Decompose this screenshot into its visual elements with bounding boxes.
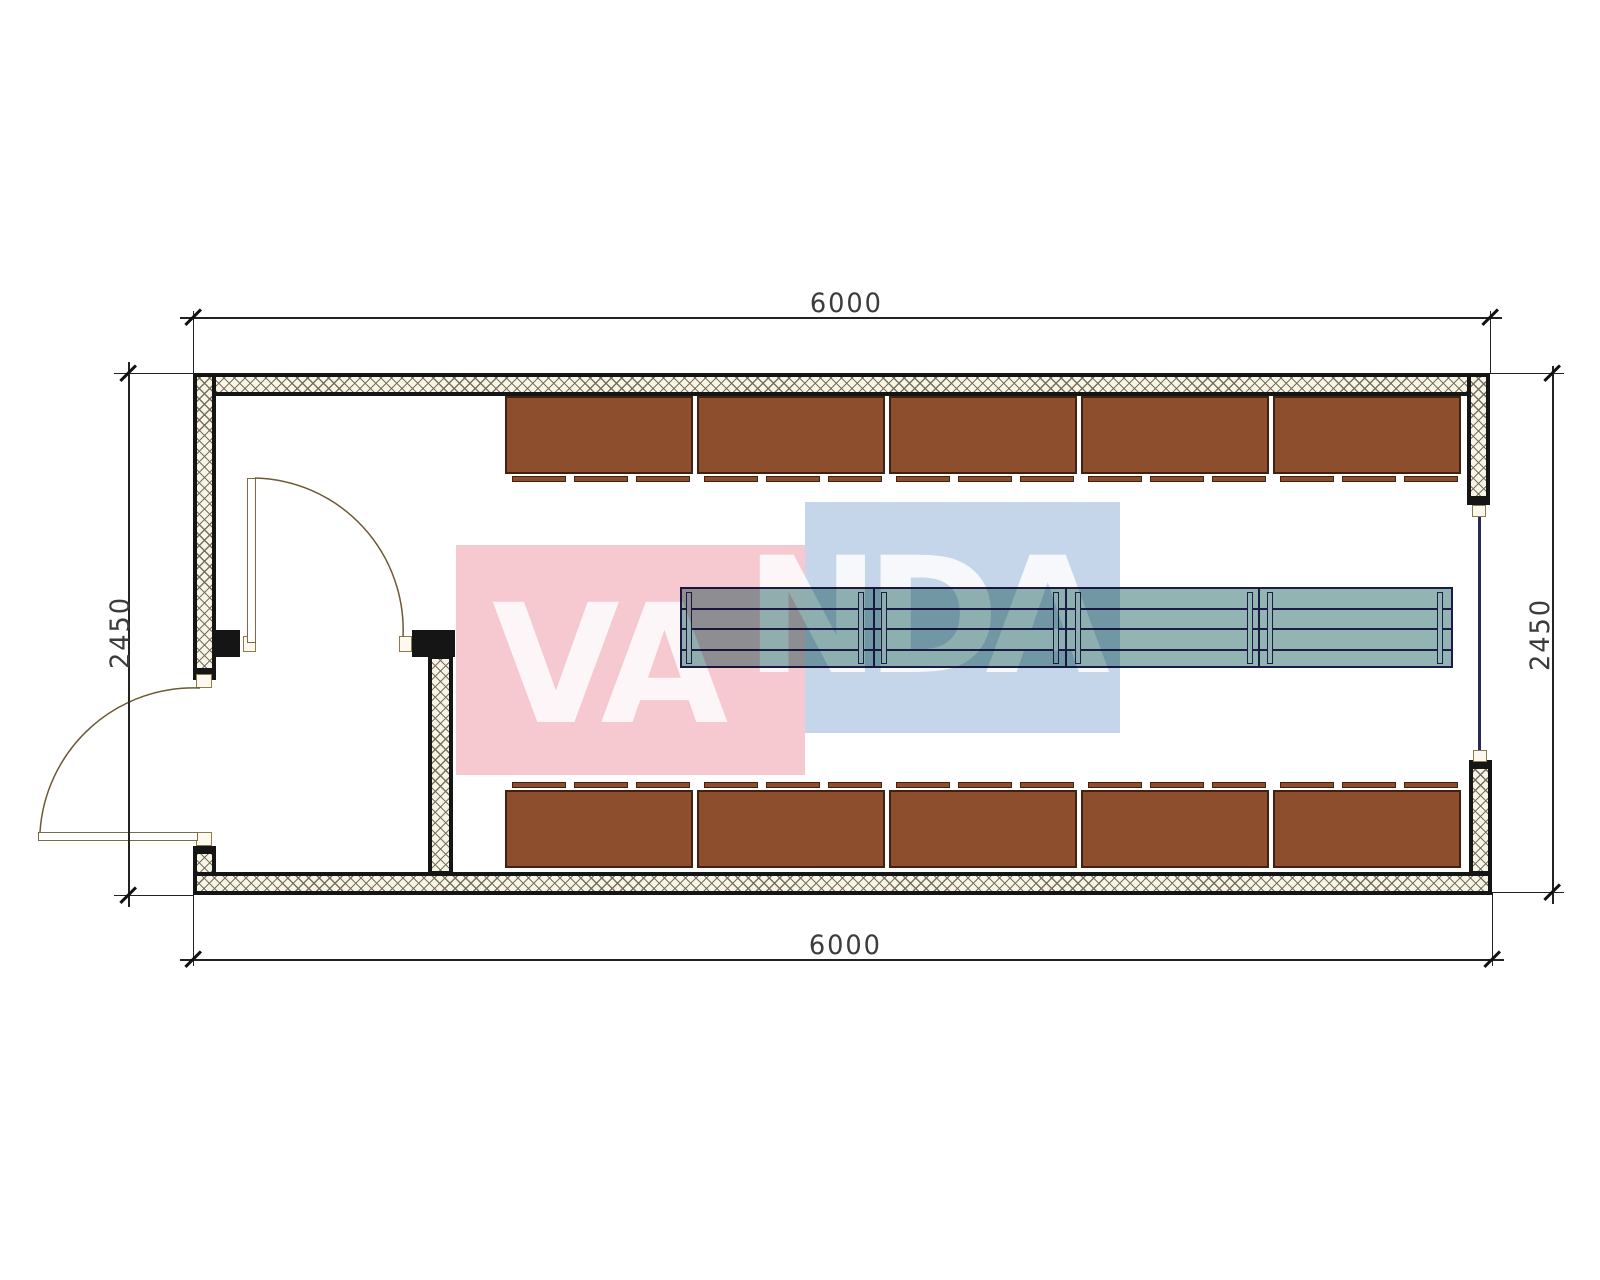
dim-text-bottom: 6000	[809, 930, 882, 961]
dim-text-right: 2450	[1525, 598, 1556, 671]
floor-plan-canvas: VA NDA	[0, 0, 1600, 1280]
dim-text-top: 6000	[810, 288, 883, 319]
ext-top-right	[1490, 311, 1491, 373]
dim-text-left: 2450	[105, 596, 136, 669]
dimensions-layer: 6000 6000 2450 2450	[0, 0, 1600, 1280]
ext-top-left	[193, 311, 194, 373]
